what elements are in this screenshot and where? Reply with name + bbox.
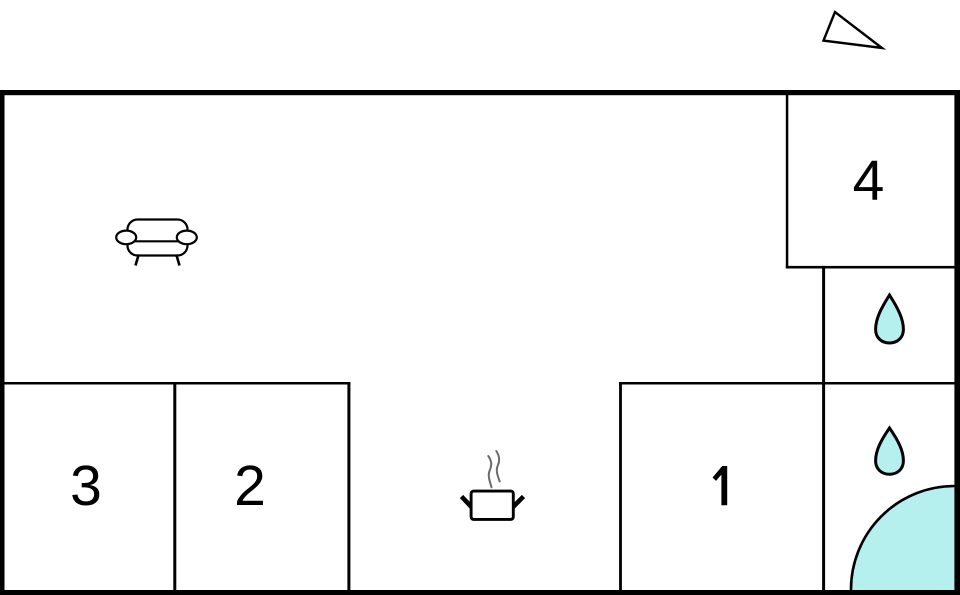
svg-text:3: 3 <box>70 454 102 518</box>
svg-text:4: 4 <box>853 149 885 213</box>
svg-text:2: 2 <box>234 454 266 518</box>
